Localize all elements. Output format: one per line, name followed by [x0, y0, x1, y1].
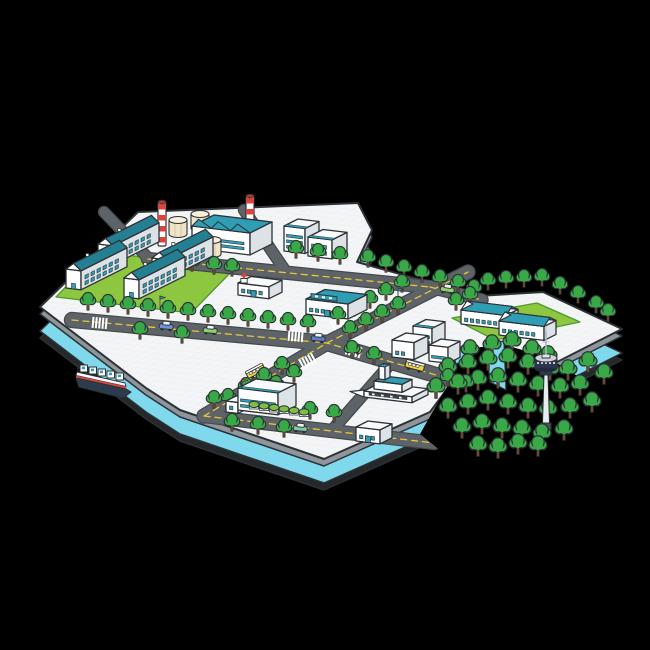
hedge-bush — [299, 409, 309, 417]
hedge-bush — [269, 404, 279, 412]
hedge-bush — [259, 403, 269, 411]
hedge-bush — [249, 401, 259, 409]
isometric-city-map — [0, 0, 650, 650]
hedge-bush — [279, 406, 289, 414]
storage-tank — [169, 217, 187, 238]
hedge-bush — [289, 407, 299, 415]
corner-shop — [356, 421, 392, 444]
office-block-a — [392, 333, 428, 360]
illustration-stage — [0, 0, 650, 650]
